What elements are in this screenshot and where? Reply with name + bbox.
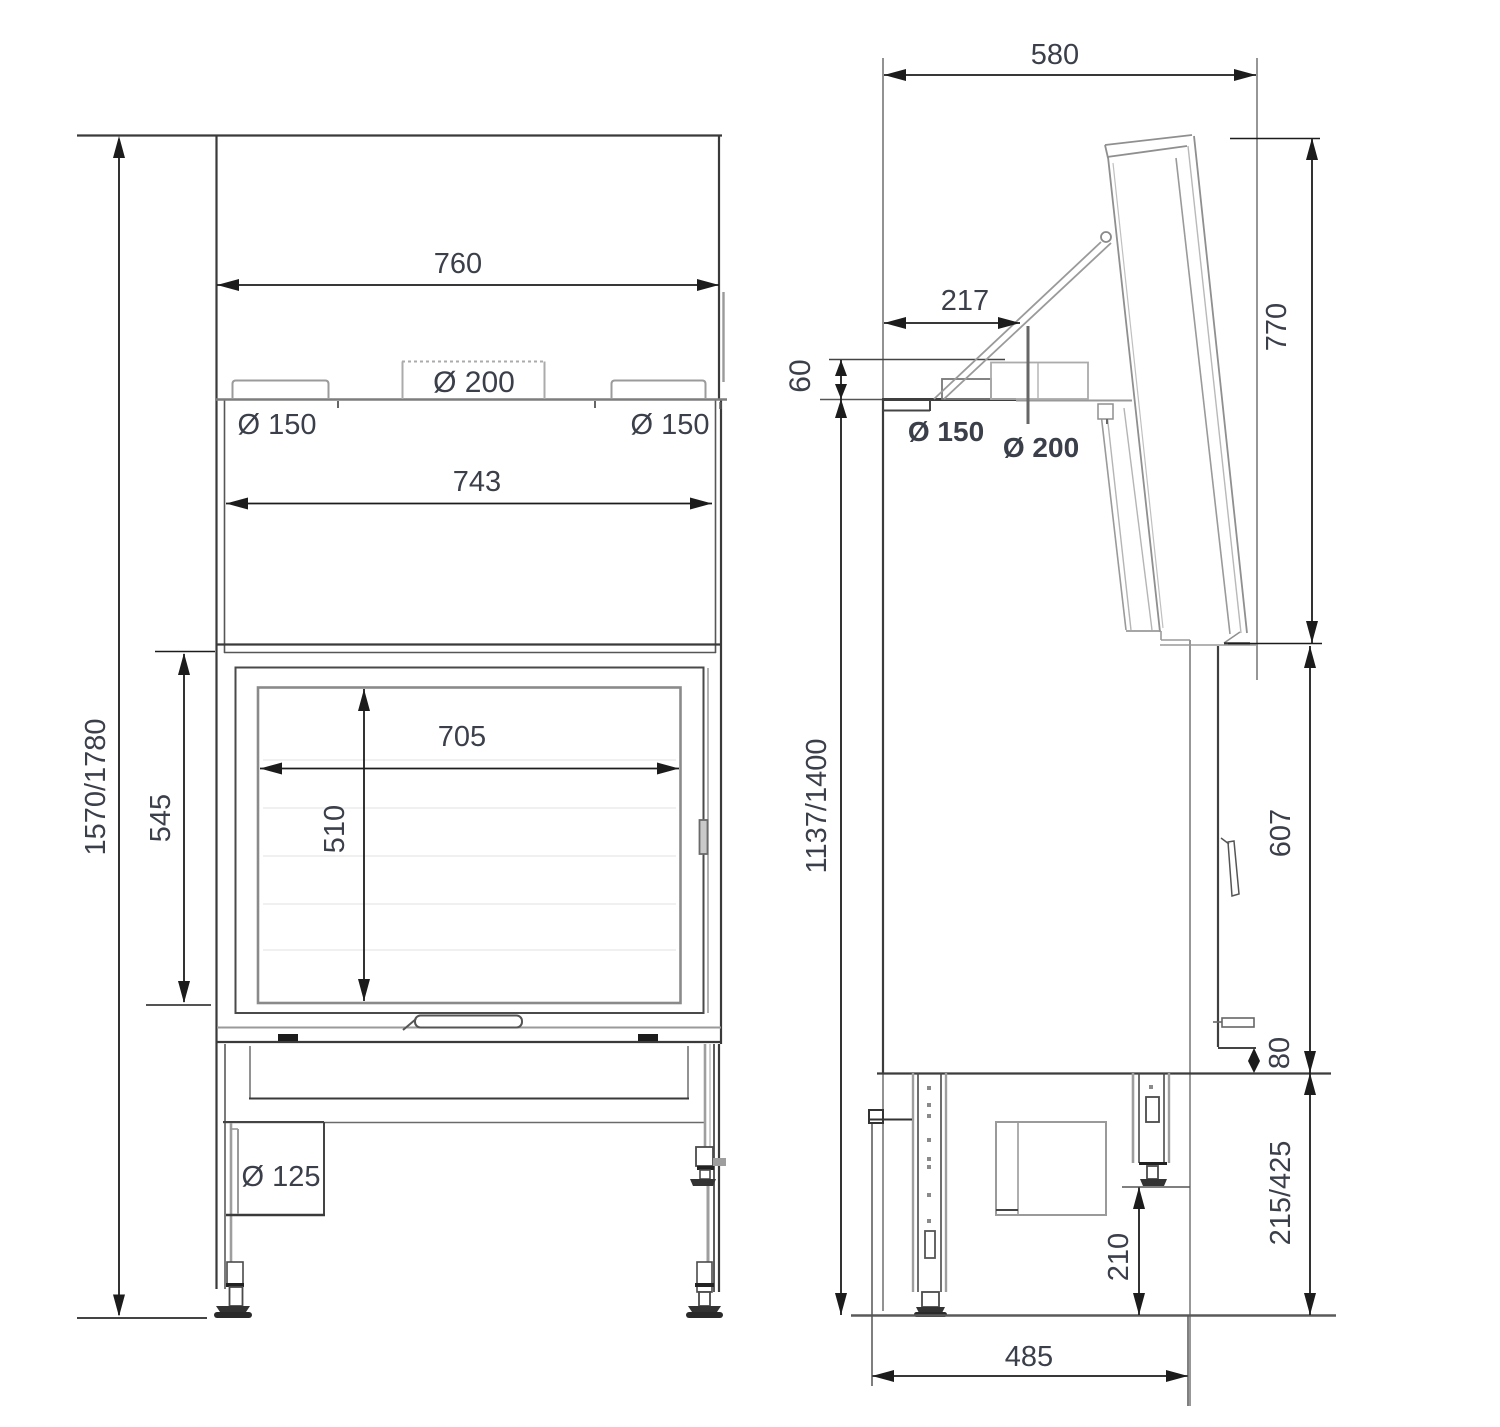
svg-text:217: 217 — [941, 285, 989, 317]
svg-text:743: 743 — [453, 466, 501, 498]
svg-text:60: 60 — [784, 359, 817, 392]
svg-text:Ø 150: Ø 150 — [631, 409, 710, 441]
svg-text:545: 545 — [145, 794, 177, 842]
svg-text:1137/1400: 1137/1400 — [801, 739, 833, 874]
svg-text:80: 80 — [1264, 1037, 1296, 1069]
svg-text:705: 705 — [438, 721, 486, 753]
svg-text:760: 760 — [434, 248, 482, 280]
svg-text:580: 580 — [1031, 39, 1079, 71]
svg-text:770: 770 — [1261, 303, 1293, 351]
svg-text:Ø 125: Ø 125 — [242, 1161, 321, 1193]
svg-text:210: 210 — [1103, 1233, 1135, 1281]
svg-text:607: 607 — [1265, 809, 1297, 857]
svg-text:Ø 150: Ø 150 — [908, 416, 984, 447]
svg-text:485: 485 — [1005, 1341, 1053, 1373]
svg-text:510: 510 — [319, 805, 351, 853]
svg-text:Ø 150: Ø 150 — [238, 409, 317, 441]
svg-text:Ø 200: Ø 200 — [1003, 432, 1079, 463]
svg-text:Ø 200: Ø 200 — [433, 366, 515, 399]
svg-text:1570/1780: 1570/1780 — [80, 718, 112, 855]
svg-text:215/425: 215/425 — [1265, 1141, 1297, 1246]
